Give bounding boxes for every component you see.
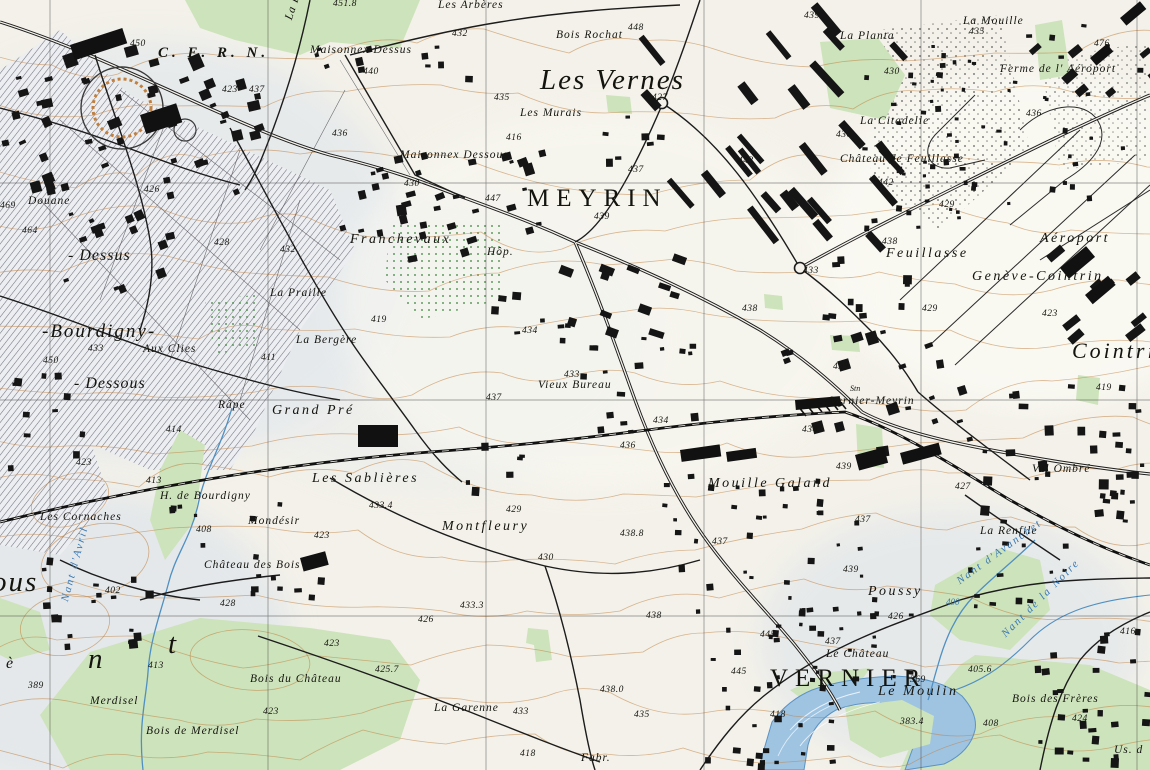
roundabout-feuillasse [795,263,806,274]
map-graphics [0,0,1150,770]
topographic-map[interactable]: C. E. R. N.Les VernesMEYRINVERNIERCointr… [0,0,1150,770]
